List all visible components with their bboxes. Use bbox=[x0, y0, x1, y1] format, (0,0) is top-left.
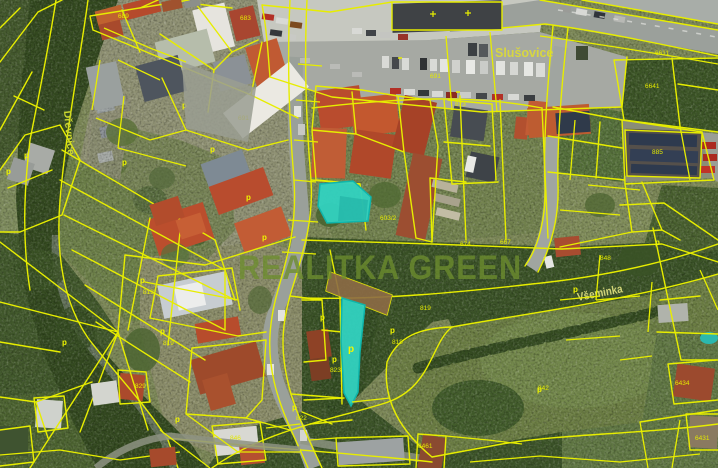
svg-text:p: p bbox=[246, 193, 251, 202]
svg-text:823: 823 bbox=[330, 367, 341, 374]
svg-text:674: 674 bbox=[460, 241, 471, 248]
svg-text:p: p bbox=[24, 151, 29, 160]
svg-text:REALITKA GREEN: REALITKA GREEN bbox=[238, 249, 522, 287]
svg-text:Slušovice: Slušovice bbox=[495, 46, 553, 60]
svg-text:813: 813 bbox=[143, 289, 154, 296]
svg-text:p: p bbox=[62, 338, 67, 347]
svg-text:p: p bbox=[262, 233, 267, 242]
svg-text:8461: 8461 bbox=[418, 443, 433, 450]
svg-text:p: p bbox=[348, 344, 354, 355]
svg-text:819: 819 bbox=[163, 340, 174, 347]
svg-text:6434: 6434 bbox=[675, 380, 690, 387]
svg-text:683: 683 bbox=[240, 15, 251, 22]
svg-text:p: p bbox=[292, 403, 297, 412]
svg-text:842: 842 bbox=[538, 385, 549, 392]
svg-text:689: 689 bbox=[118, 13, 129, 20]
svg-text:6641: 6641 bbox=[645, 83, 660, 90]
svg-text:819: 819 bbox=[420, 305, 431, 312]
svg-text:p: p bbox=[573, 285, 578, 294]
svg-text:873: 873 bbox=[455, 101, 466, 108]
svg-text:848: 848 bbox=[600, 255, 611, 262]
svg-text:p: p bbox=[175, 415, 180, 424]
svg-text:822: 822 bbox=[296, 415, 307, 422]
svg-text:p: p bbox=[210, 145, 215, 154]
svg-text:829: 829 bbox=[135, 383, 146, 390]
svg-text:691: 691 bbox=[430, 73, 441, 80]
svg-text:603/2: 603/2 bbox=[380, 215, 397, 222]
svg-text:p: p bbox=[140, 276, 145, 285]
svg-text:885: 885 bbox=[652, 149, 663, 156]
svg-text:p: p bbox=[6, 167, 11, 176]
svg-text:p: p bbox=[655, 238, 660, 247]
svg-text:p: p bbox=[122, 158, 127, 167]
svg-text:6431: 6431 bbox=[695, 435, 710, 442]
svg-text:p: p bbox=[390, 326, 395, 335]
svg-text:p: p bbox=[160, 327, 165, 336]
svg-text:818: 818 bbox=[392, 339, 403, 346]
svg-text:p: p bbox=[320, 313, 325, 322]
svg-text:667: 667 bbox=[500, 239, 511, 246]
svg-text:p: p bbox=[332, 355, 337, 364]
